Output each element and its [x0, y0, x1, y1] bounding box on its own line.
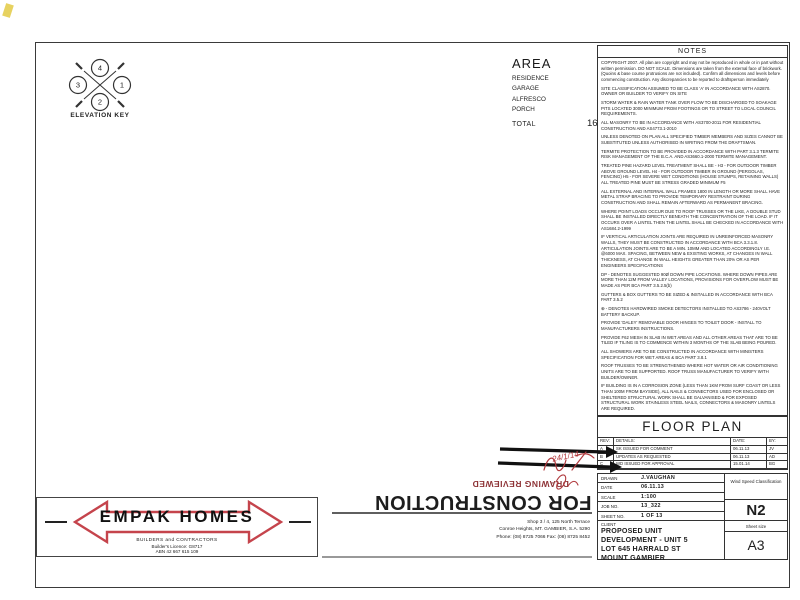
- markup-overlay: 24/1/14: [0, 0, 800, 600]
- revision-arrow: [498, 463, 610, 467]
- revision-arrowhead: [606, 446, 618, 458]
- revision-arrowhead: [610, 461, 622, 473]
- drawing-sheet-page: { "palette":{"ink":"#1f1f1f","wall":"#16…: [0, 0, 800, 600]
- signature-initials: [556, 475, 578, 489]
- revision-arrow: [500, 449, 606, 452]
